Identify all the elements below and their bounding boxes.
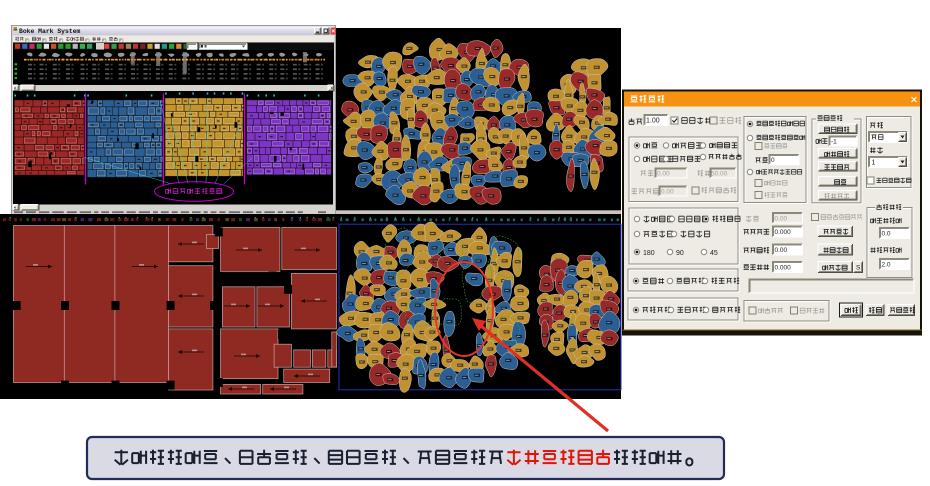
svg-text:(F): (F) [119, 38, 124, 42]
svg-text:1.00: 1.00 [646, 118, 660, 125]
svg-text:90: 90 [676, 250, 684, 257]
svg-text:0.000: 0.000 [775, 229, 792, 236]
svg-text:2.0: 2.0 [882, 262, 891, 269]
svg-text:(F): (F) [102, 38, 107, 42]
svg-text:-1: -1 [831, 139, 837, 146]
svg-text:0.00: 0.00 [661, 189, 674, 196]
svg-text:Boke Mark System: Boke Mark System [19, 28, 81, 35]
svg-text:(F): (F) [42, 38, 47, 42]
svg-text:0.000: 0.000 [775, 265, 792, 272]
svg-text:180: 180 [643, 250, 655, 257]
svg-text:1: 1 [872, 160, 876, 167]
svg-text:50.00: 50.00 [711, 171, 728, 178]
svg-text:S: S [856, 265, 861, 272]
svg-text:0.00: 0.00 [657, 171, 670, 178]
svg-text:0.0: 0.0 [882, 231, 891, 238]
svg-text:(F): (F) [25, 38, 30, 42]
svg-text:0.00: 0.00 [775, 247, 788, 254]
svg-text:45: 45 [710, 250, 718, 257]
svg-text:0: 0 [771, 157, 775, 164]
svg-text:0.00: 0.00 [775, 216, 788, 223]
svg-text:(F): (F) [59, 38, 64, 42]
svg-text:(F): (F) [85, 38, 90, 42]
